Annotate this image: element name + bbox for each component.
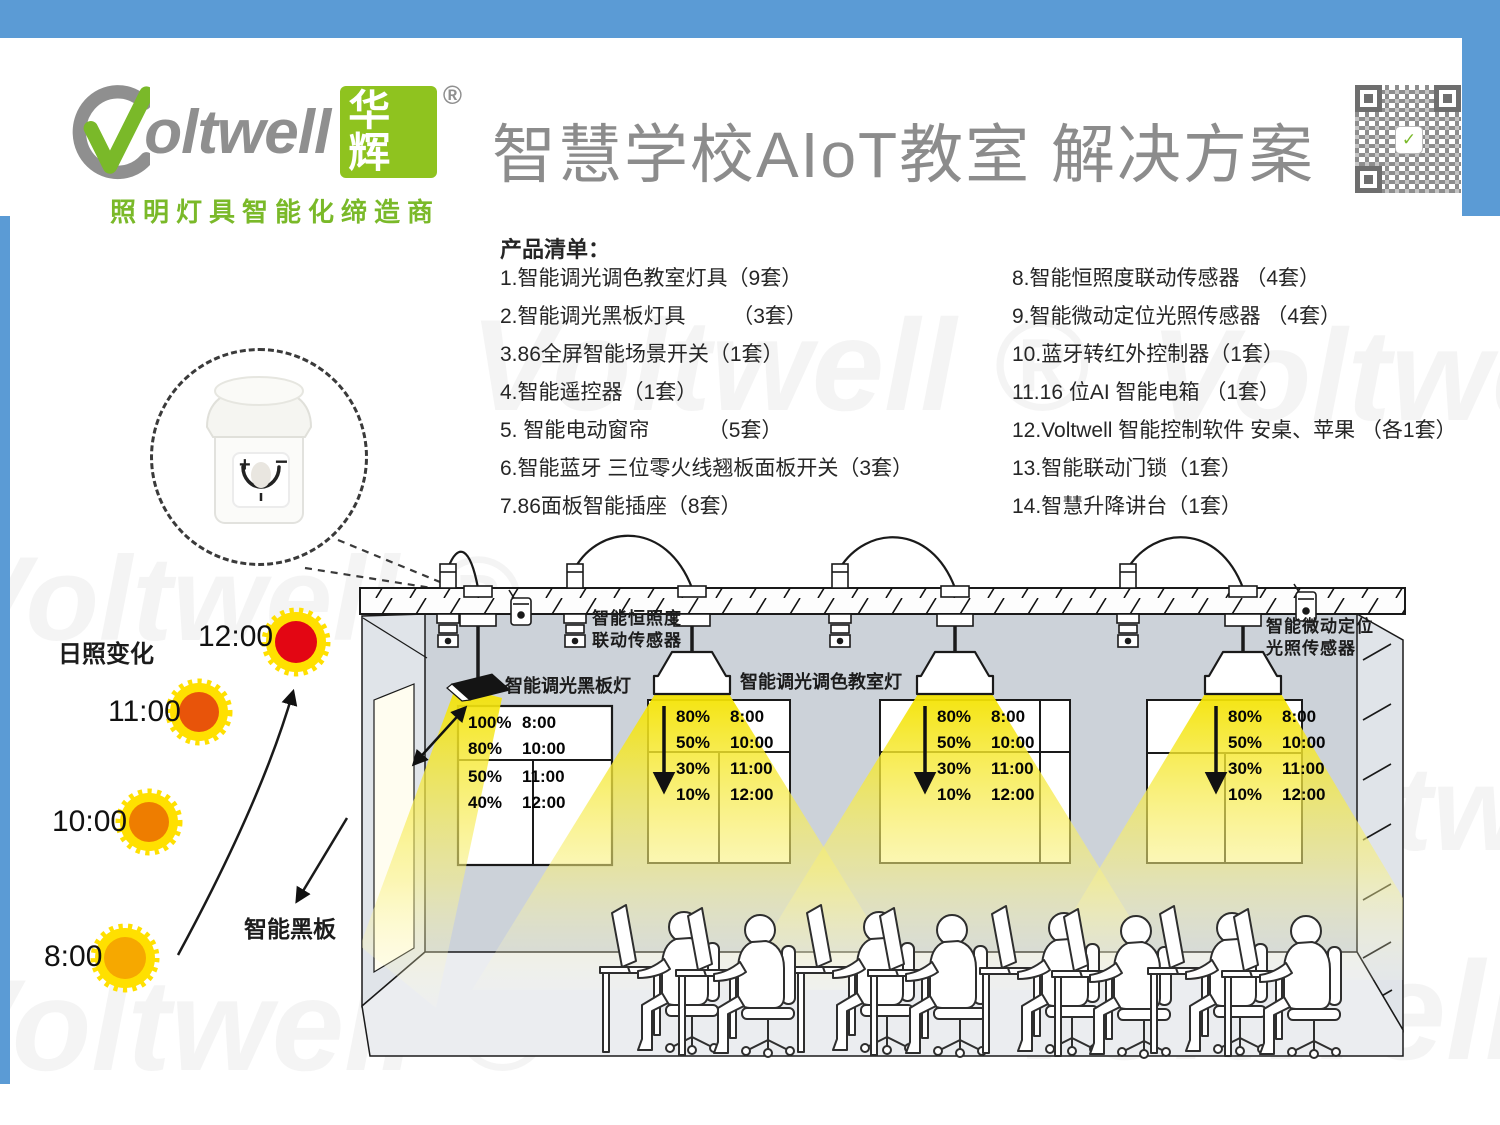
list-item: 10.蓝牙转红外控制器（1套） [1012,342,1492,380]
sun-time-label: 11:00 [108,695,181,729]
product-list-heading: 产品清单： [500,232,1490,264]
dimming-schedule-classroom-2: 80%8:00 50%10:00 30%11:00 10%12:00 [937,704,1034,808]
list-item: 14.智慧升降讲台（1套） [1012,494,1492,532]
dimming-schedule-classroom-3: 80%8:00 50%10:00 30%11:00 10%12:00 [1228,704,1325,808]
qr-finder-icon [1355,166,1382,193]
micro-position-sensor-label: 智能微动定位 光照传感器 [1266,616,1374,660]
page-title: 智慧学校AIoT教室 解决方案 [492,104,1315,196]
sun-diagram-title: 日照变化 [58,634,154,669]
top-blue-band [0,0,1500,38]
list-item: 3.86全屏智能场景开关（1套） [500,342,1000,380]
sun-12 [266,612,326,672]
qr-finder-icon [1434,85,1461,112]
qr-finder-icon [1355,85,1382,112]
poster-page: Voltwell ® Voltwell ® Voltwell ® Voltwel… [0,0,1500,1125]
list-item: 13.智能联动门锁（1套） [1012,456,1492,494]
sun-time-label: 12:00 [198,620,273,654]
list-item: 2.智能调光黑板灯具 （3套） [500,304,1000,342]
logo-brand-text: oltwell [144,97,330,168]
list-item: 5. 智能电动窗帘 （5套） [500,418,1000,456]
list-item: 1.智能调光调色教室灯具（9套） [500,266,1000,304]
sun-10 [120,793,178,851]
voltwell-logo: oltwell 华辉 ® 照明灯具智能化缔造商 [62,80,462,229]
sun-8 [95,928,155,988]
classroom-light-label: 智能调光调色教室灯 [740,668,902,694]
dimming-schedule-blackboard: 100%8:00 80%10:00 50%11:00 40%12:00 [468,710,565,816]
list-item: 7.86面板智能插座（8套） [500,494,1000,532]
dimming-schedule-classroom-1: 80%8:00 50%10:00 30%11:00 10%12:00 [676,704,773,808]
list-item: 9.智能微动定位光照传感器 （4套） [1012,304,1492,342]
logo-registered-mark: ® [443,80,462,111]
light-sensor-closeup: + − [153,351,359,557]
list-item: 6.智能蓝牙 三位零火线翘板面板开关（3套） [500,456,1000,494]
list-item: 11.16 位AI 智能电箱 （1套） [1012,380,1492,418]
sun-time-label: 8:00 [44,940,102,974]
left-blue-band [0,216,10,1084]
product-list-left-column: 1.智能调光调色教室灯具（9套） 2.智能调光黑板灯具 （3套） 3.86全屏智… [500,266,1000,532]
qr-code: ✓ [1352,82,1464,196]
svg-text:−: − [275,449,288,474]
sensor-magnifier-bubble: + − [150,348,368,566]
blackboard-light-label: 智能调光黑板灯 [505,672,631,698]
right-blue-band [1462,38,1500,216]
qr-logo-badge: ✓ [1395,126,1423,154]
product-list-right-column: 8.智能恒照度联动传感器 （4套） 9.智能微动定位光照传感器 （4套） 10.… [1012,266,1492,532]
logo-tagline: 照明灯具智能化缔造商 [110,192,462,229]
smart-blackboard-label: 智能黑板 [244,910,336,944]
blackboard-pointer-arrow [297,818,347,901]
list-item: 8.智能恒照度联动传感器 （4套） [1012,266,1492,304]
constant-illuminance-sensor-label: 智能恒照度 联动传感器 [592,608,682,652]
logo-swoosh-icon [62,80,150,184]
sun-time-label: 10:00 [52,805,127,839]
list-item: 4.智能遥控器（1套） [500,380,1000,418]
product-list: 产品清单： 1.智能调光调色教室灯具（9套） 2.智能调光黑板灯具 （3套） 3… [500,232,1490,278]
logo-cn-text: 华辉 [340,86,437,178]
list-item: 12.Voltwell 智能控制软件 安桌、苹果 （各1套） [1012,418,1492,456]
